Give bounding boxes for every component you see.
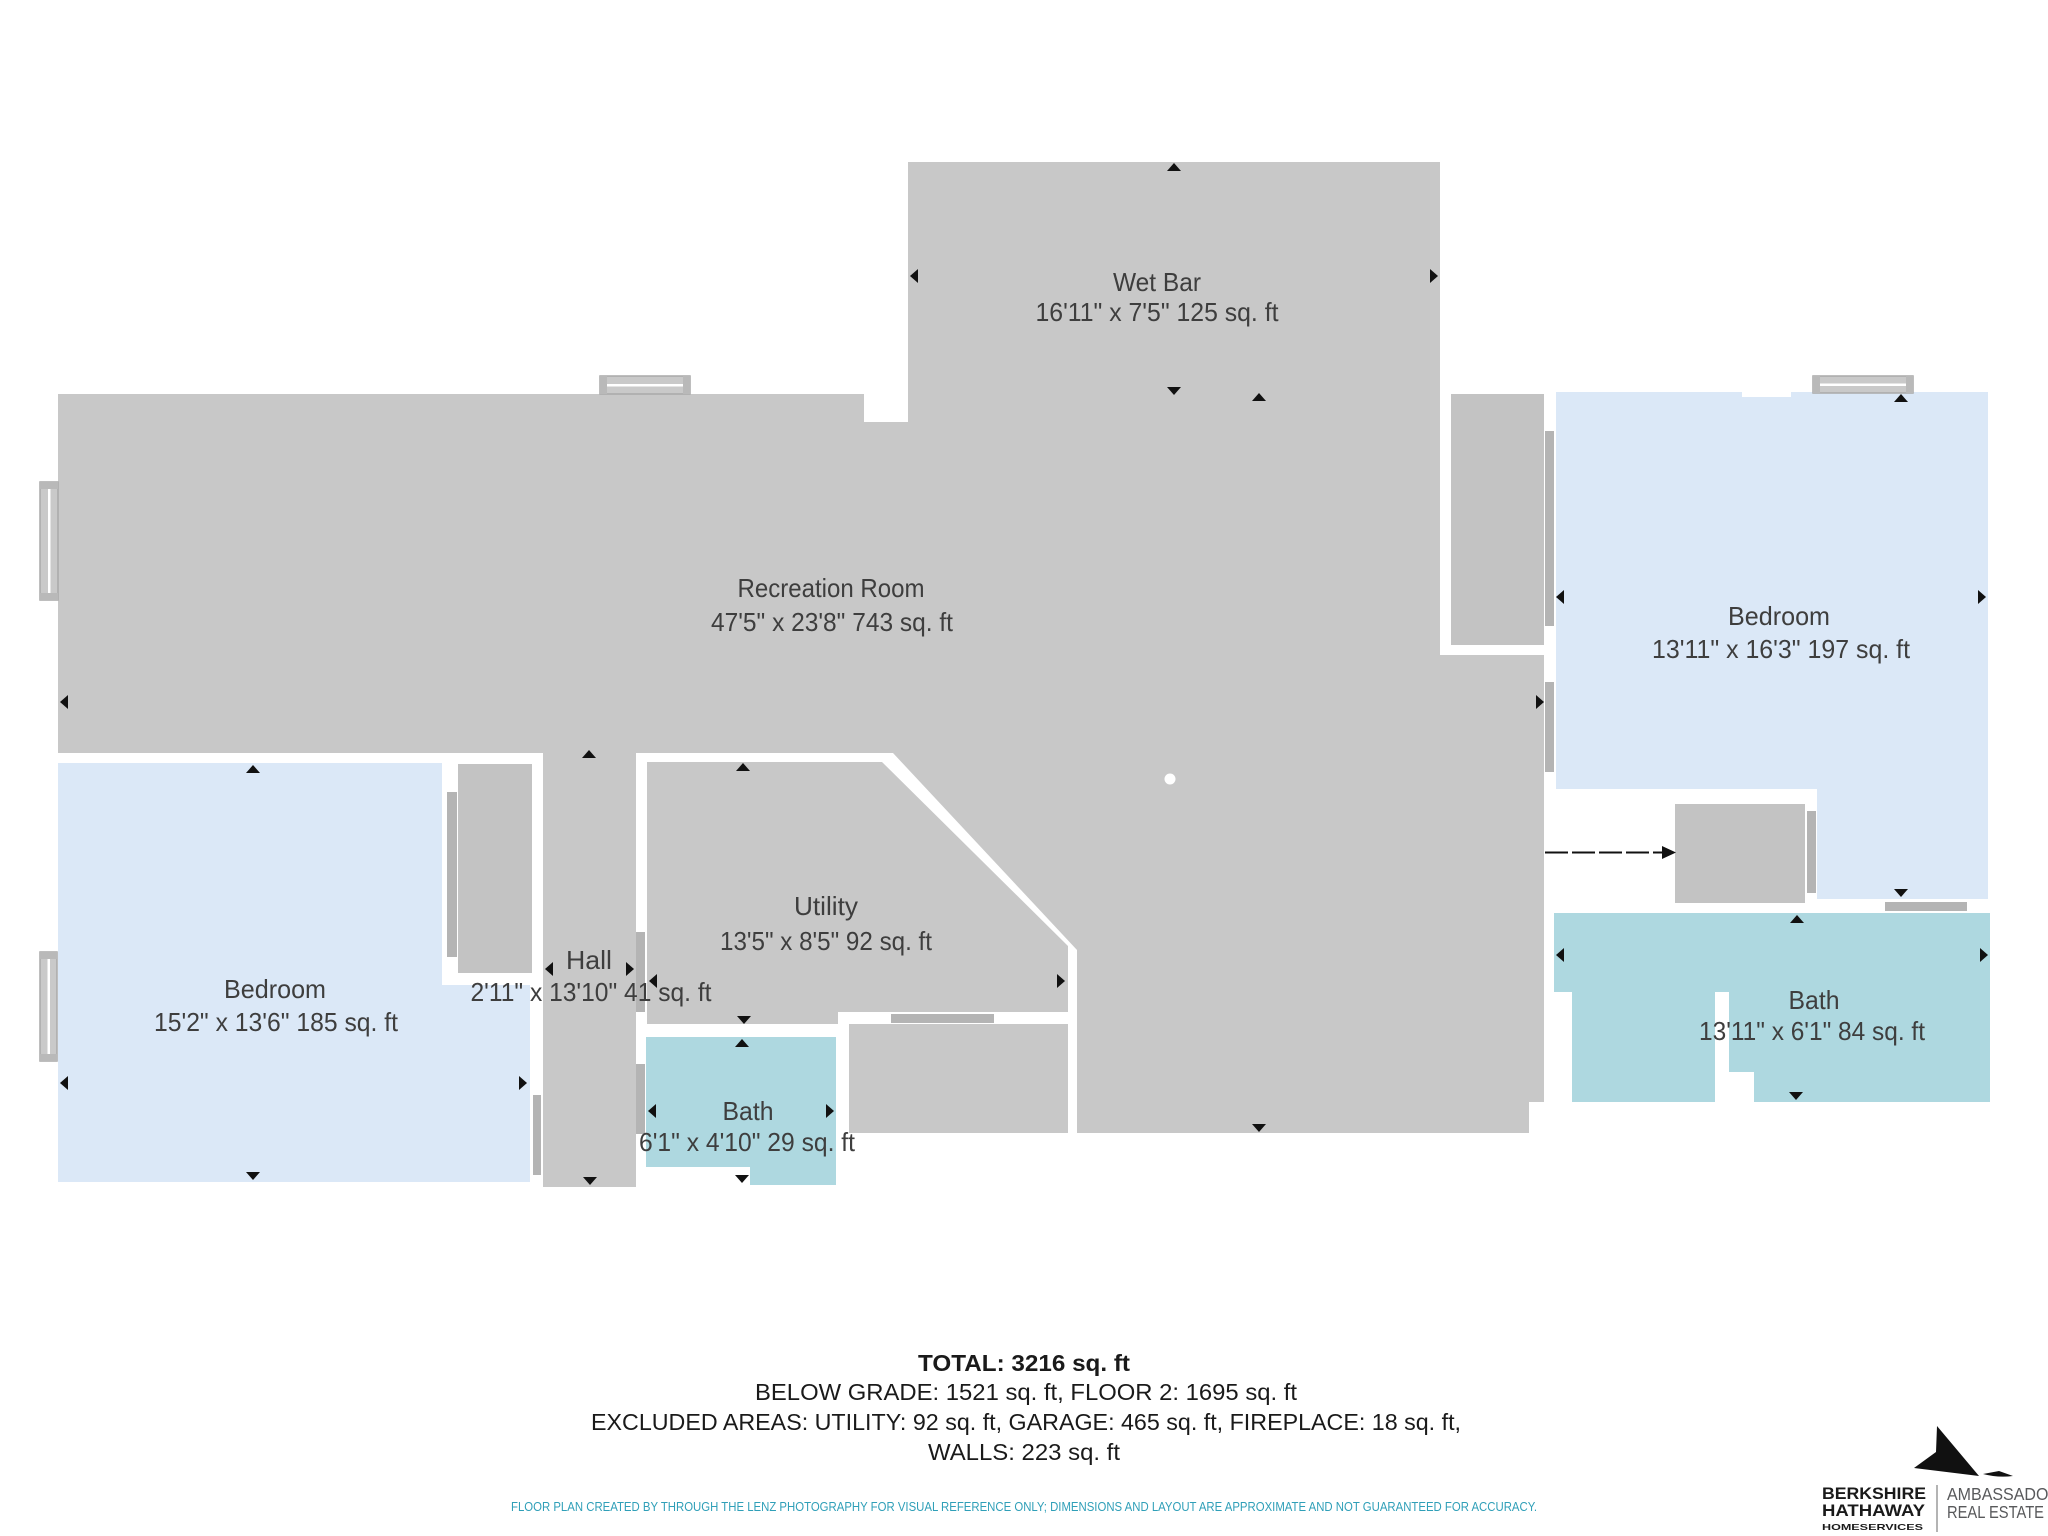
svg-text:Hall: Hall bbox=[566, 945, 612, 975]
svg-text:HATHAWAY: HATHAWAY bbox=[1822, 1502, 1925, 1520]
svg-text:WALLS: 223 sq. ft: WALLS: 223 sq. ft bbox=[928, 1439, 1121, 1465]
svg-text:HOMESERVICES: HOMESERVICES bbox=[1822, 1522, 1923, 1532]
svg-text:Recreation Room: Recreation Room bbox=[738, 573, 925, 603]
svg-text:Bath: Bath bbox=[1789, 985, 1840, 1015]
svg-text:Bath: Bath bbox=[723, 1096, 774, 1126]
svg-text:Bedroom: Bedroom bbox=[224, 974, 326, 1004]
svg-text:13'5" x 8'5" 92 sq. ft: 13'5" x 8'5" 92 sq. ft bbox=[720, 926, 933, 956]
svg-text:TOTAL: 3216 sq. ft: TOTAL: 3216 sq. ft bbox=[918, 1350, 1130, 1376]
svg-text:REAL ESTATE: REAL ESTATE bbox=[1947, 1502, 2044, 1522]
svg-text:6'1" x 4'10" 29 sq. ft: 6'1" x 4'10" 29 sq. ft bbox=[639, 1127, 856, 1157]
svg-text:15'2" x 13'6" 185 sq. ft: 15'2" x 13'6" 185 sq. ft bbox=[154, 1007, 399, 1037]
svg-text:Wet Bar: Wet Bar bbox=[1113, 267, 1201, 297]
svg-text:2'11" x 13'10" 41 sq. ft: 2'11" x 13'10" 41 sq. ft bbox=[471, 977, 713, 1007]
svg-text:47'5" x 23'8" 743 sq. ft: 47'5" x 23'8" 743 sq. ft bbox=[711, 607, 954, 637]
svg-text:FLOOR PLAN CREATED BY THROUGH: FLOOR PLAN CREATED BY THROUGH THE LENZ P… bbox=[511, 1500, 1537, 1514]
svg-text:13'11" x 16'3" 197 sq. ft: 13'11" x 16'3" 197 sq. ft bbox=[1652, 634, 1911, 664]
svg-text:Bedroom: Bedroom bbox=[1728, 601, 1830, 631]
svg-text:EXCLUDED AREAS: UTILITY: 92 sq: EXCLUDED AREAS: UTILITY: 92 sq. ft, GARA… bbox=[591, 1409, 1461, 1435]
svg-text:BERKSHIRE: BERKSHIRE bbox=[1822, 1485, 1926, 1503]
svg-text:16'11" x 7'5" 125 sq. ft: 16'11" x 7'5" 125 sq. ft bbox=[1036, 297, 1280, 327]
svg-text:BELOW GRADE: 1521 sq. ft, FLOO: BELOW GRADE: 1521 sq. ft, FLOOR 2: 1695 … bbox=[755, 1379, 1298, 1405]
svg-text:Utility: Utility bbox=[794, 891, 858, 921]
svg-text:AMBASSADOR: AMBASSADOR bbox=[1947, 1484, 2048, 1504]
svg-text:13'11" x 6'1" 84 sq. ft: 13'11" x 6'1" 84 sq. ft bbox=[1699, 1016, 1926, 1046]
